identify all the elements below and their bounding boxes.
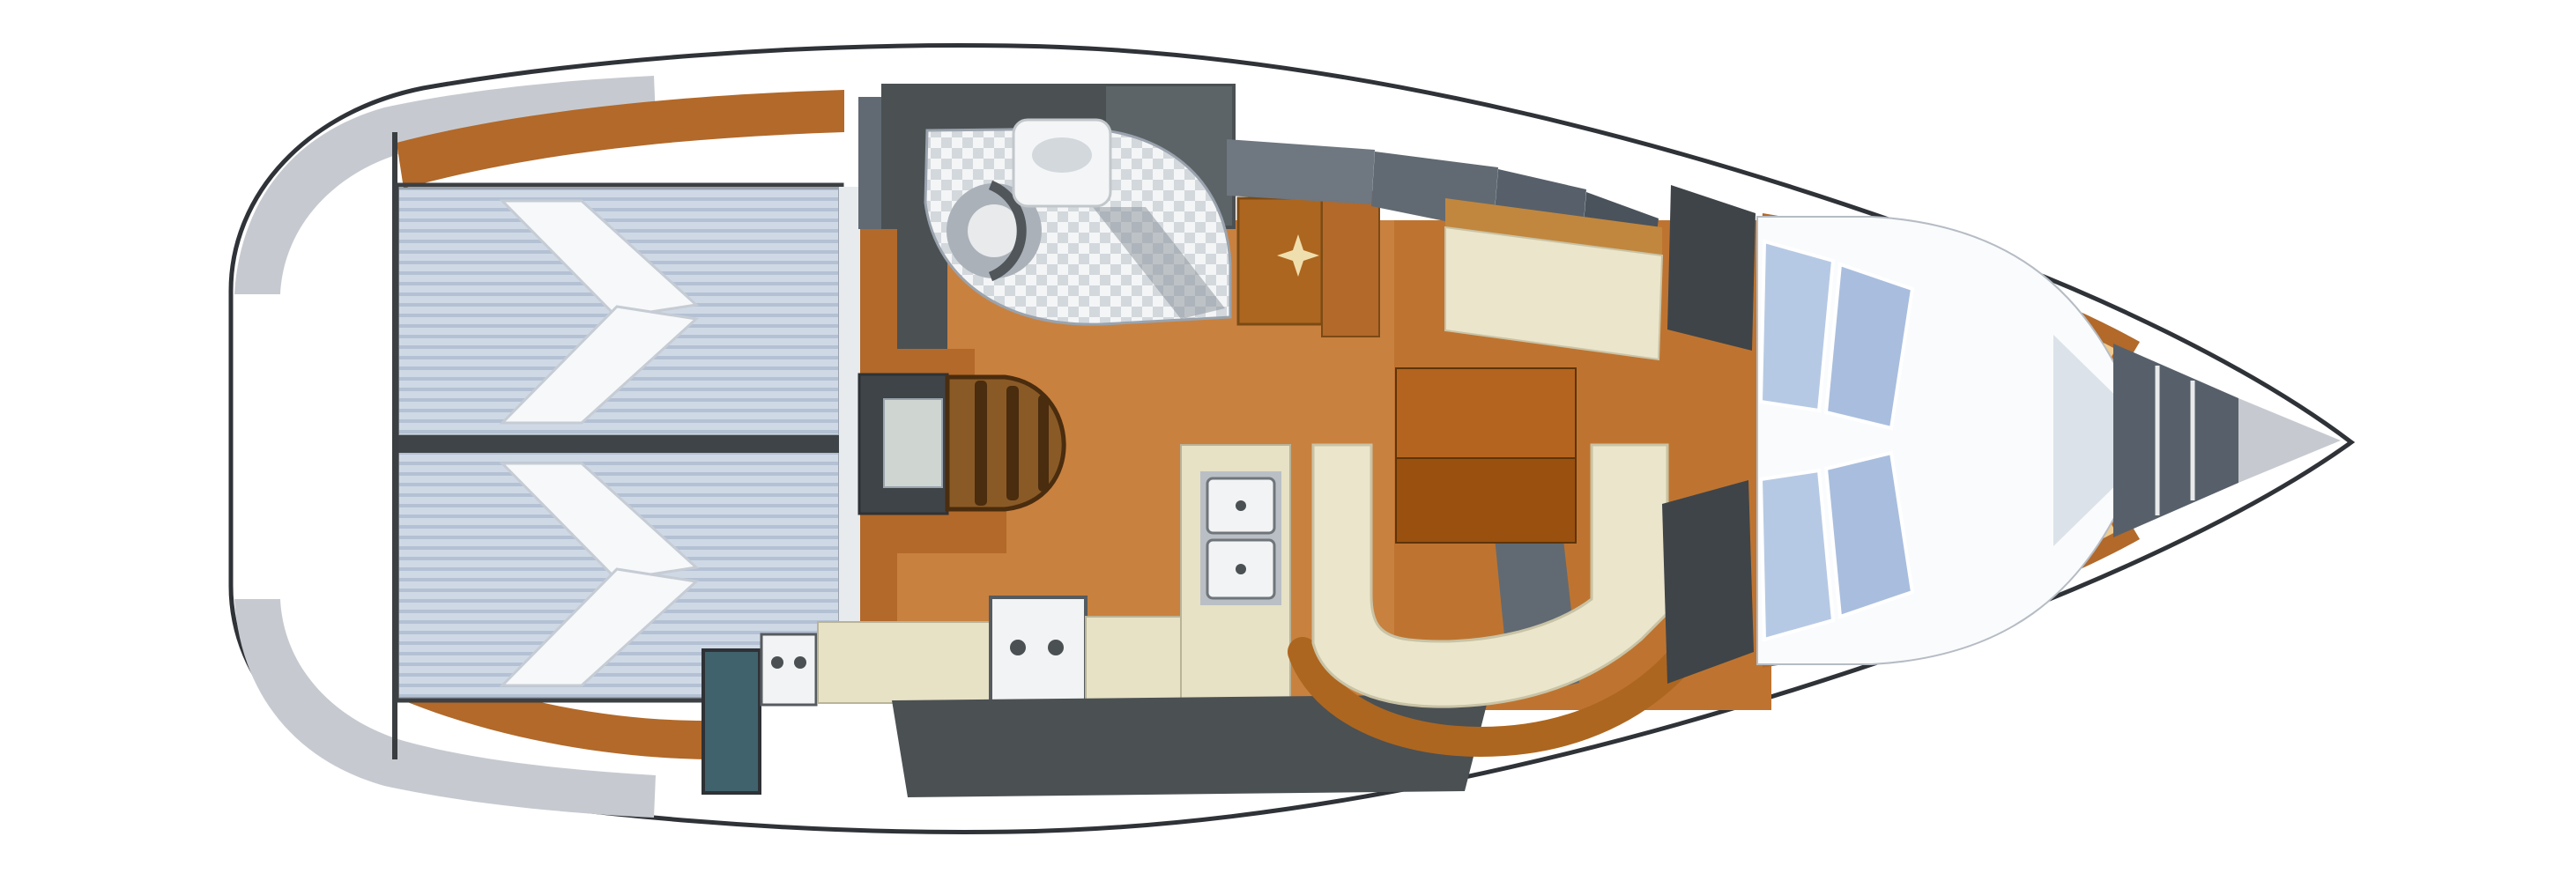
galley-counter-aft [818, 622, 991, 703]
salon-table-leaf [1396, 458, 1576, 543]
head-aft-wall [858, 97, 885, 229]
companionway-top-trim [888, 349, 975, 377]
stove-burner-2 [1048, 640, 1064, 655]
shower-basin-inner [968, 204, 1021, 257]
appliance-knob-1 [771, 656, 783, 669]
sink-drain-2 [1236, 564, 1246, 574]
boat-floorplan-canvas [0, 0, 2576, 881]
companionway-landing [884, 399, 942, 487]
forward-bulkhead-bottom [1662, 480, 1754, 684]
step-slat-2 [1006, 386, 1019, 500]
wet-locker [703, 650, 760, 793]
sink-drain-1 [1236, 500, 1246, 511]
galley-counter-mid [1086, 617, 1181, 710]
engine-divider [395, 435, 844, 453]
step-slat-3 [1038, 395, 1049, 492]
v-berth-pillow-1 [1761, 241, 1833, 411]
toilet-bowl [1032, 137, 1092, 173]
boat-floorplan [0, 0, 2576, 881]
stove-burner-1 [1010, 640, 1026, 655]
step-slat-1 [975, 381, 987, 506]
locker-panel [1322, 192, 1379, 337]
v-berth-pillow-3 [1761, 470, 1833, 640]
stove [991, 597, 1086, 701]
slate-band-1 [1227, 139, 1375, 204]
galley-appliance [761, 634, 816, 705]
salon-table-top [1396, 368, 1576, 458]
appliance-knob-2 [794, 656, 806, 669]
companionway-bottom-trim [890, 511, 1006, 553]
forward-bulkhead-top [1667, 185, 1756, 351]
head-door [1238, 198, 1322, 324]
